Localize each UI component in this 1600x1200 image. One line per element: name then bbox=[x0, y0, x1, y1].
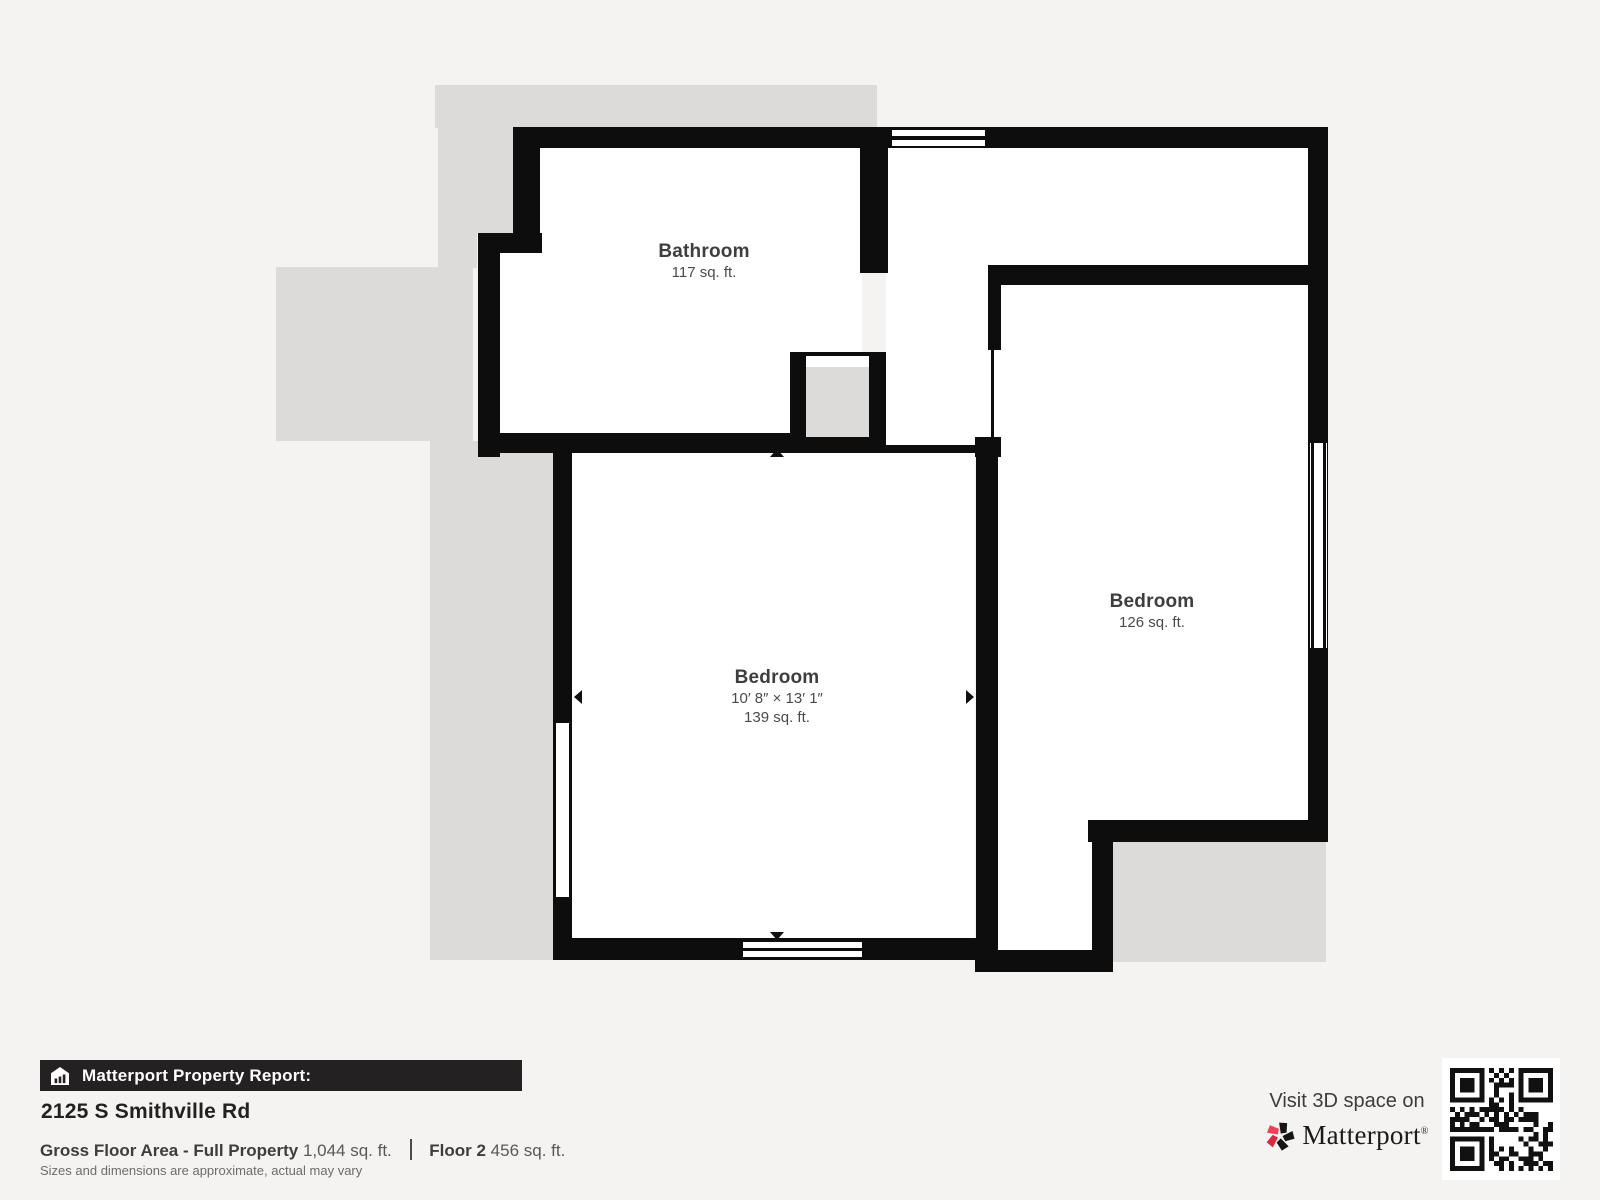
chimney-slot bbox=[806, 356, 869, 367]
separator bbox=[410, 1139, 412, 1160]
room-floor-bathroom bbox=[540, 148, 862, 253]
wall-bathroom-hall-divider bbox=[860, 143, 888, 273]
wall-bedroom-right-bottom bbox=[1088, 820, 1328, 842]
disclaimer-text: Sizes and dimensions are approximate, ac… bbox=[40, 1163, 362, 1178]
room-name: Bedroom bbox=[731, 667, 823, 689]
room-floor-hall bbox=[886, 148, 1308, 267]
window-bedroom-main-bottom-pane bbox=[743, 948, 862, 951]
room-label-bedroom-main: Bedroom 10′ 8″ × 13′ 1″ 139 sq. ft. bbox=[731, 667, 823, 727]
window-right-pane bbox=[1323, 443, 1326, 648]
dimension-arrow-up bbox=[770, 449, 784, 457]
lower-floor-underlay bbox=[435, 85, 877, 128]
floor-area-value: 456 sq. ft. bbox=[491, 1141, 566, 1160]
qr-code-pattern bbox=[1450, 1068, 1553, 1171]
report-banner: Matterport Property Report: bbox=[40, 1060, 522, 1091]
lower-floor-underlay bbox=[276, 267, 473, 441]
room-dimensions: 10′ 8″ × 13′ 1″ bbox=[731, 689, 823, 708]
report-banner-label: Matterport Property Report: bbox=[82, 1066, 311, 1086]
matterport-wordmark: Matterport® bbox=[1302, 1120, 1428, 1151]
trademark-symbol: ® bbox=[1421, 1126, 1429, 1137]
visit-3d-text: Visit 3D space on bbox=[1256, 1090, 1438, 1113]
lower-floor-underlay bbox=[430, 441, 553, 960]
room-floor-hall bbox=[886, 267, 976, 445]
room-area: 126 sq. ft. bbox=[1110, 613, 1195, 632]
wall-bedroom-right-top bbox=[988, 265, 1310, 285]
window-hall-bedroom-pane bbox=[991, 350, 994, 437]
lower-floor-underlay bbox=[1113, 842, 1326, 962]
wall-bedrooms-divider bbox=[976, 453, 998, 970]
gross-floor-area-label: Gross Floor Area - Full Property bbox=[40, 1141, 298, 1160]
page: { "floorplan": { "rooms": [ { "id": "bat… bbox=[0, 0, 1600, 1200]
room-name: Bathroom bbox=[658, 241, 749, 263]
room-label-bathroom: Bathroom 117 sq. ft. bbox=[658, 241, 749, 282]
room-area: 117 sq. ft. bbox=[658, 263, 749, 282]
dimension-arrow-right bbox=[966, 690, 974, 704]
room-name: Bedroom bbox=[1110, 591, 1195, 613]
room-area: 139 sq. ft. bbox=[731, 708, 823, 727]
gross-floor-area-value: 1,044 sq. ft. bbox=[303, 1141, 392, 1160]
room-label-bedroom-right: Bedroom 126 sq. ft. bbox=[1110, 591, 1195, 632]
property-address: 2125 S Smithville Rd bbox=[41, 1100, 250, 1124]
room-floor-bedroom-right bbox=[998, 285, 1308, 820]
room-floor-stair-leg bbox=[996, 820, 1092, 950]
window-right-pane bbox=[1311, 443, 1314, 648]
door-threshold bbox=[886, 445, 977, 453]
chimney-interior bbox=[806, 367, 869, 437]
floor-plan: Bathroom 117 sq. ft. Bedroom 10′ 8″ × 13… bbox=[0, 0, 1600, 1000]
lower-floor-underlay bbox=[438, 85, 477, 268]
window-top-pane bbox=[892, 136, 985, 140]
floor-area-line: Gross Floor Area - Full Property 1,044 s… bbox=[40, 1135, 565, 1161]
wall-bathroom-left-lower bbox=[478, 233, 500, 457]
house-report-icon bbox=[50, 1066, 70, 1086]
qr-code bbox=[1442, 1058, 1560, 1180]
visit-3d-cta: Visit 3D space on Matterport® bbox=[1256, 1090, 1438, 1151]
matterport-logo: Matterport® bbox=[1256, 1120, 1438, 1151]
dimension-arrow-down bbox=[770, 932, 784, 940]
dimension-arrow-left bbox=[574, 690, 582, 704]
window-bedroom-main-left bbox=[556, 723, 569, 897]
matterport-pinwheel-icon bbox=[1265, 1121, 1295, 1151]
floor-label: Floor 2 bbox=[429, 1141, 486, 1160]
